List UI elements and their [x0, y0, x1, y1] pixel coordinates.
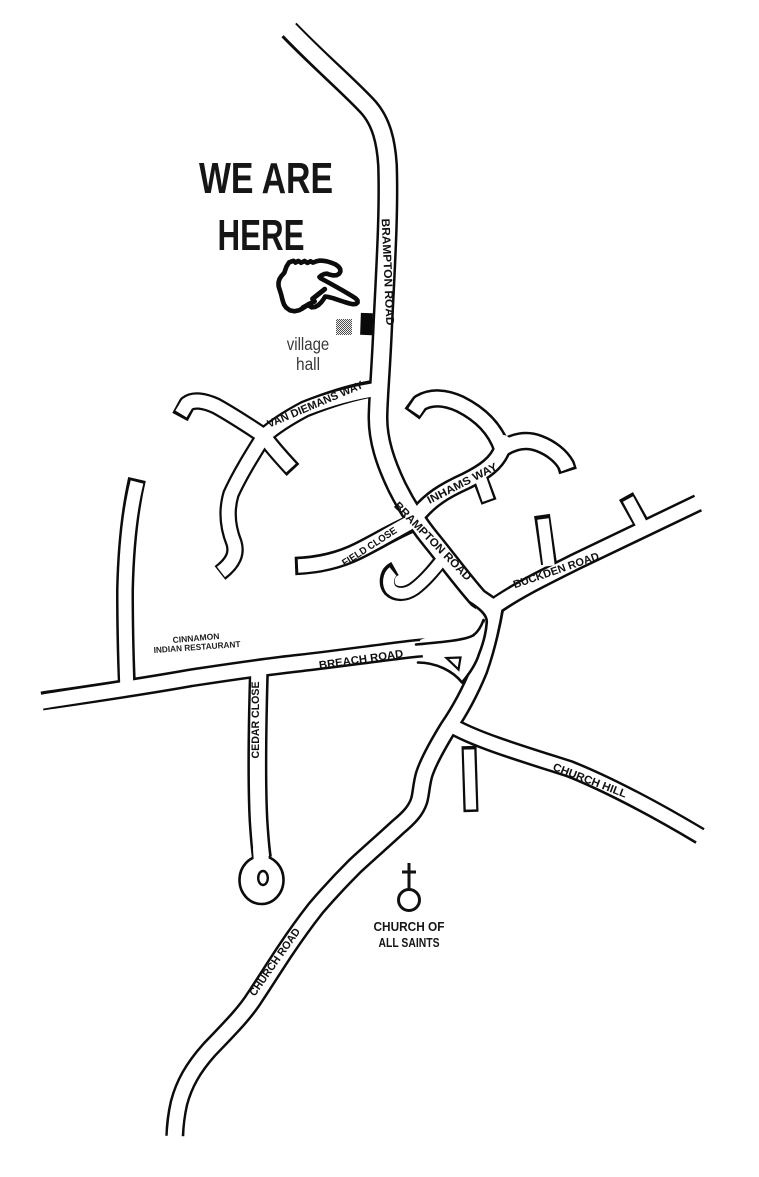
svg-text:CEDAR CLOSE: CEDAR CLOSE: [250, 682, 262, 759]
svg-text:WE ARE: WE ARE: [199, 154, 333, 203]
svg-text:village: village: [287, 334, 330, 354]
svg-text:ALL SAINTS: ALL SAINTS: [379, 936, 440, 950]
svg-text:hall: hall: [296, 354, 320, 374]
svg-text:HERE: HERE: [218, 211, 305, 260]
svg-text:CHURCH OF: CHURCH OF: [374, 920, 445, 934]
